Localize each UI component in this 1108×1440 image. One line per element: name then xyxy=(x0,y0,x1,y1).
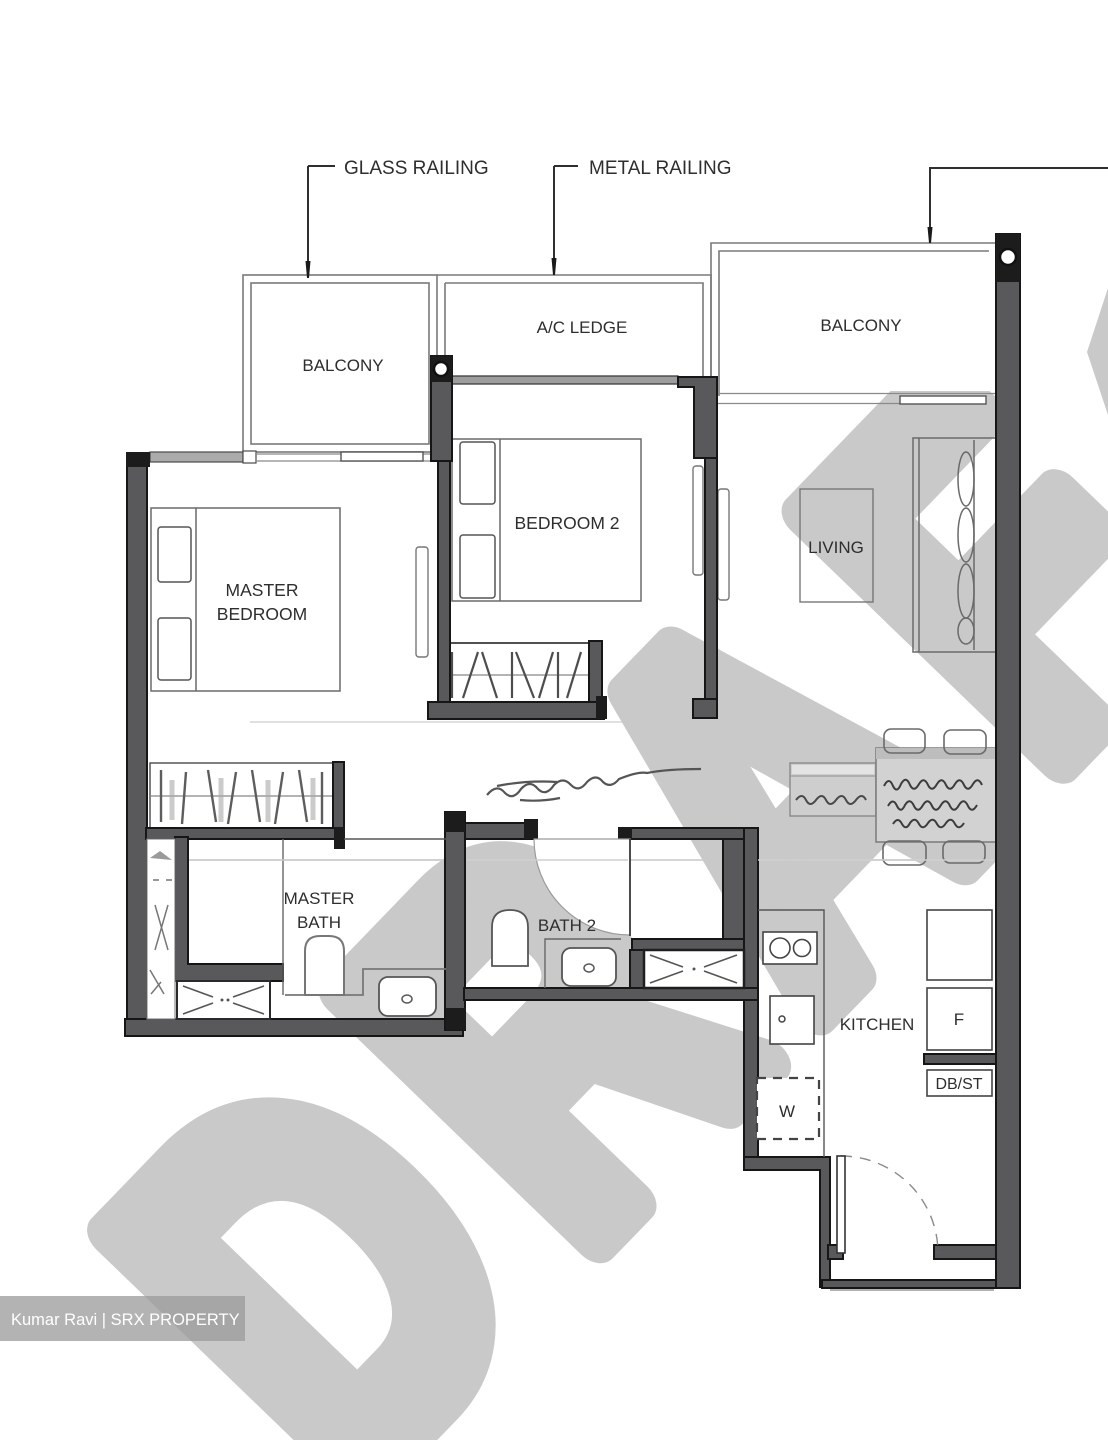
svg-text:BALCONY: BALCONY xyxy=(820,316,901,335)
svg-text:W: W xyxy=(779,1102,795,1121)
svg-text:BATH 2: BATH 2 xyxy=(538,916,596,935)
svg-text:BALCONY: BALCONY xyxy=(302,356,383,375)
svg-text:BEDROOM 2: BEDROOM 2 xyxy=(514,513,619,533)
svg-text:BATH: BATH xyxy=(297,913,341,932)
svg-text:Kumar Ravi | SRX PROPERTY: Kumar Ravi | SRX PROPERTY xyxy=(11,1311,240,1329)
svg-text:DB/ST: DB/ST xyxy=(935,1076,982,1093)
svg-text:LIVING: LIVING xyxy=(808,538,864,557)
svg-text:METAL RAILING: METAL RAILING xyxy=(589,158,732,179)
svg-text:BEDROOM: BEDROOM xyxy=(217,604,307,624)
svg-text:KITCHEN: KITCHEN xyxy=(840,1015,915,1034)
svg-text:A/C LEDGE: A/C LEDGE xyxy=(537,318,628,337)
svg-text:F: F xyxy=(954,1010,964,1029)
svg-text:MASTER: MASTER xyxy=(284,889,355,908)
svg-text:MASTER: MASTER xyxy=(226,580,299,600)
svg-text:GLASS RAILING: GLASS RAILING xyxy=(344,158,489,179)
